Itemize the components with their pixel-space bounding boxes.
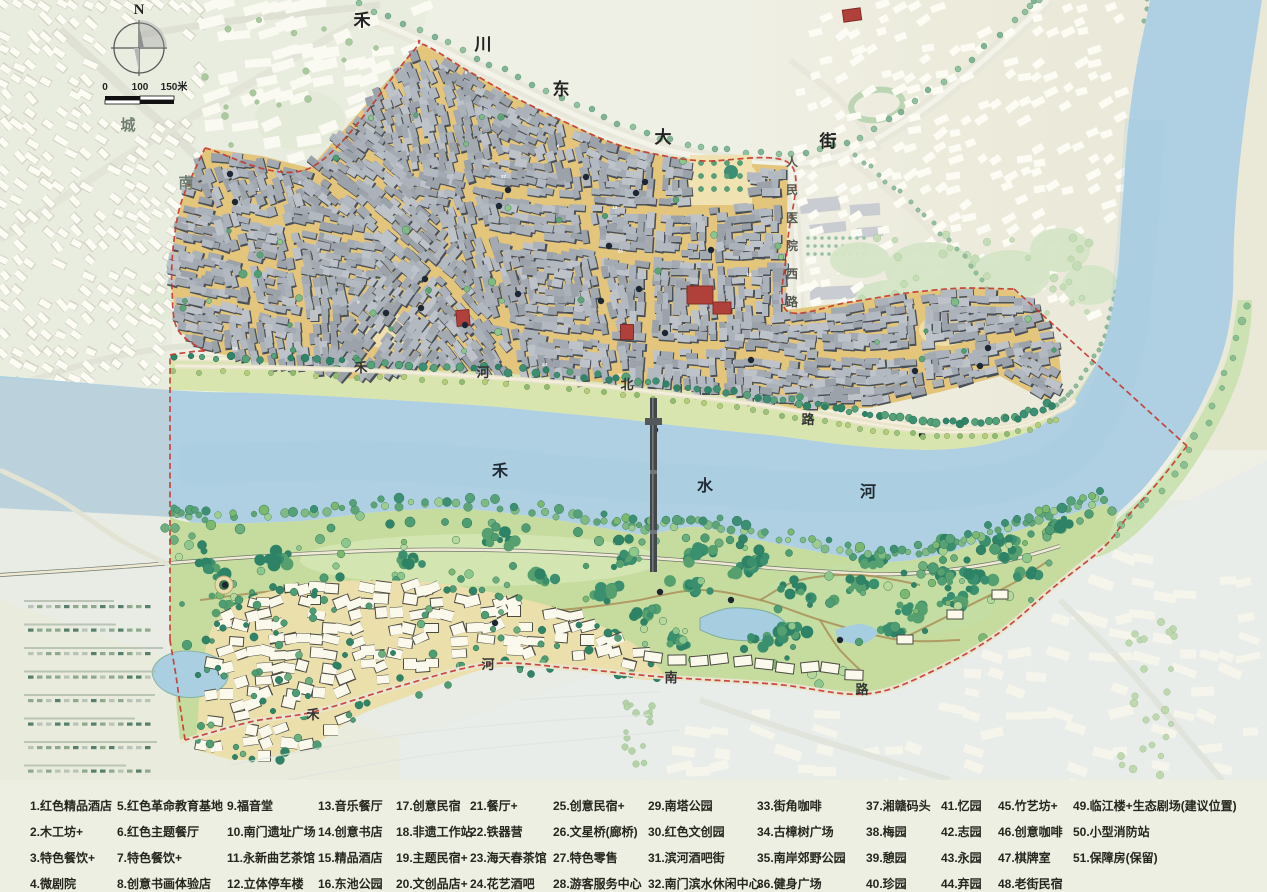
svg-text:东: 东 bbox=[553, 79, 570, 99]
svg-text:北: 北 bbox=[620, 377, 633, 392]
svg-text:南: 南 bbox=[664, 670, 677, 685]
svg-text:26: 26 bbox=[618, 249, 624, 254]
svg-text:川: 川 bbox=[474, 35, 492, 54]
svg-text:8.创意书画体验店: 8.创意书画体验店 bbox=[117, 876, 211, 891]
svg-text:33.街角咖啡: 33.街角咖啡 bbox=[757, 798, 822, 813]
svg-text:河: 河 bbox=[860, 482, 876, 501]
svg-text:13.音乐餐厅: 13.音乐餐厅 bbox=[318, 798, 383, 813]
svg-text:9: 9 bbox=[357, 299, 360, 304]
svg-text:9.福音堂: 9.福音堂 bbox=[227, 798, 273, 813]
svg-text:27: 27 bbox=[501, 174, 507, 179]
svg-text:18.非遗工作站: 18.非遗工作站 bbox=[396, 824, 473, 839]
svg-text:17.创意民宿: 17.创意民宿 bbox=[396, 798, 461, 813]
svg-text:31.滨河酒吧街: 31.滨河酒吧街 bbox=[648, 850, 725, 865]
svg-text:48.老街民宿: 48.老街民宿 bbox=[998, 876, 1063, 891]
svg-text:24: 24 bbox=[232, 346, 238, 351]
svg-text:4.微剧院: 4.微剧院 bbox=[30, 876, 76, 891]
svg-text:42.志园: 42.志园 bbox=[941, 824, 982, 839]
svg-text:医: 医 bbox=[786, 211, 798, 225]
svg-text:22.铁器营: 22.铁器营 bbox=[470, 824, 523, 839]
svg-text:24.花艺酒吧: 24.花艺酒吧 bbox=[470, 876, 535, 891]
svg-text:禾: 禾 bbox=[354, 360, 368, 375]
svg-text:5.红色革命教育基地: 5.红色革命教育基地 bbox=[117, 798, 223, 813]
svg-text:15.精品酒店: 15.精品酒店 bbox=[318, 850, 383, 865]
svg-text:南: 南 bbox=[178, 174, 193, 192]
svg-text:10.南门遗址广场: 10.南门遗址广场 bbox=[227, 824, 316, 839]
svg-text:25.创意民宿+: 25.创意民宿+ bbox=[553, 798, 625, 813]
svg-text:19.主题民宿+: 19.主题民宿+ bbox=[396, 850, 468, 865]
svg-text:44.弃园: 44.弃园 bbox=[941, 876, 982, 891]
svg-text:47.棋牌室: 47.棋牌室 bbox=[998, 850, 1051, 865]
svg-text:26.文星桥(廊桥): 26.文星桥(廊桥) bbox=[553, 824, 638, 839]
svg-text:39.憩园: 39.憩园 bbox=[866, 850, 907, 865]
svg-text:50.小型消防站: 50.小型消防站 bbox=[1073, 824, 1150, 839]
svg-text:2.木工坊+: 2.木工坊+ bbox=[30, 824, 83, 839]
svg-text:1: 1 bbox=[257, 187, 260, 192]
svg-text:29.南塔公园: 29.南塔公园 bbox=[648, 798, 713, 813]
svg-text:7.特色餐饮+: 7.特色餐饮+ bbox=[117, 850, 182, 865]
svg-text:河: 河 bbox=[476, 365, 489, 380]
svg-text:6.红色主题餐厅: 6.红色主题餐厅 bbox=[117, 824, 199, 839]
svg-text:43.永园: 43.永园 bbox=[941, 850, 982, 865]
svg-text:禾: 禾 bbox=[354, 11, 371, 30]
svg-text:禾: 禾 bbox=[306, 707, 320, 722]
svg-text:24: 24 bbox=[542, 362, 548, 367]
svg-text:150米: 150米 bbox=[161, 80, 189, 93]
svg-text:21.餐厅+: 21.餐厅+ bbox=[470, 798, 518, 813]
svg-text:人: 人 bbox=[786, 154, 799, 169]
svg-text:30.红色文创园: 30.红色文创园 bbox=[648, 824, 725, 839]
svg-text:32.南门滨水休闲中心: 32.南门滨水休闲中心 bbox=[648, 876, 761, 891]
svg-text:3.特色餐饮+: 3.特色餐饮+ bbox=[30, 850, 95, 865]
svg-text:1.红色精品酒店: 1.红色精品酒店 bbox=[30, 798, 112, 813]
svg-text:36.健身广场: 36.健身广场 bbox=[757, 876, 822, 891]
svg-text:西: 西 bbox=[786, 267, 798, 281]
svg-text:28.游客服务中心: 28.游客服务中心 bbox=[553, 876, 642, 891]
svg-text:51.保障房(保留): 51.保障房(保留) bbox=[1073, 850, 1158, 865]
svg-text:13: 13 bbox=[612, 205, 618, 210]
svg-text:34.古樟树广场: 34.古樟树广场 bbox=[757, 824, 834, 839]
svg-text:民: 民 bbox=[786, 183, 798, 197]
svg-text:12.立体停车楼: 12.立体停车楼 bbox=[227, 876, 304, 891]
svg-text:6: 6 bbox=[557, 144, 560, 149]
svg-text:路: 路 bbox=[855, 682, 869, 697]
svg-text:河: 河 bbox=[481, 657, 494, 672]
svg-text:路: 路 bbox=[786, 294, 799, 309]
svg-text:23.海天春茶馆: 23.海天春茶馆 bbox=[470, 850, 547, 865]
svg-text:水: 水 bbox=[697, 476, 714, 495]
svg-text:14: 14 bbox=[746, 272, 752, 277]
svg-text:0: 0 bbox=[102, 82, 108, 93]
svg-text:11.永新曲艺茶馆: 11.永新曲艺茶馆 bbox=[227, 850, 315, 865]
svg-text:14.创意书店: 14.创意书店 bbox=[318, 824, 383, 839]
svg-text:100: 100 bbox=[132, 82, 149, 93]
svg-text:院: 院 bbox=[786, 238, 798, 253]
svg-text:40.珍园: 40.珍园 bbox=[866, 876, 907, 891]
svg-text:16.东池公园: 16.东池公园 bbox=[318, 876, 383, 891]
svg-text:46.创意咖啡: 46.创意咖啡 bbox=[998, 824, 1063, 839]
svg-text:27.特色零售: 27.特色零售 bbox=[553, 850, 618, 865]
svg-text:49.临江楼+生态剧场(建议位置): 49.临江楼+生态剧场(建议位置) bbox=[1073, 798, 1237, 813]
svg-text:45.竹艺坊+: 45.竹艺坊+ bbox=[998, 798, 1058, 813]
svg-text:禾: 禾 bbox=[492, 462, 508, 480]
svg-text:38.梅园: 38.梅园 bbox=[866, 824, 907, 839]
svg-text:37.湘赣码头: 37.湘赣码头 bbox=[866, 798, 931, 813]
svg-text:3: 3 bbox=[298, 180, 301, 185]
svg-text:街: 街 bbox=[819, 131, 837, 151]
svg-text:35.南岸郊野公园: 35.南岸郊野公园 bbox=[757, 850, 846, 865]
svg-text:大: 大 bbox=[655, 127, 672, 147]
svg-text:20.文创品店+: 20.文创品店+ bbox=[396, 876, 468, 891]
svg-text:路: 路 bbox=[801, 412, 815, 427]
svg-text:41.忆园: 41.忆园 bbox=[941, 798, 982, 813]
svg-text:N: N bbox=[134, 2, 145, 18]
svg-text:城: 城 bbox=[120, 116, 135, 134]
